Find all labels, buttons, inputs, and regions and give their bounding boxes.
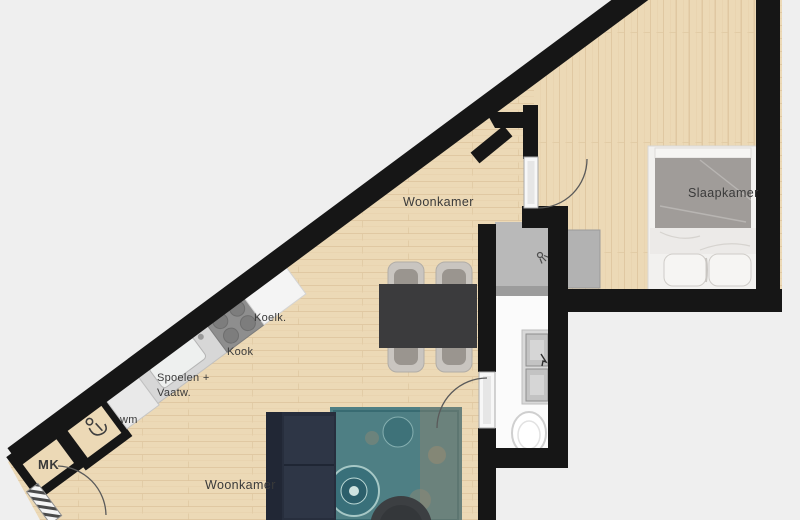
bathroom	[495, 222, 553, 454]
bathroom-right-wall	[548, 206, 568, 450]
shower-edge	[495, 286, 553, 296]
room-label-woonkamer-bottom: Woonkamer	[205, 478, 276, 492]
room-label-slaapkamer: Slaapkamer	[688, 186, 759, 200]
right-exterior-wall	[756, 0, 780, 312]
bedroom-bottom-wall	[556, 289, 782, 312]
bed	[648, 146, 758, 290]
bathroom-top-wall	[522, 206, 568, 228]
wardrobe	[566, 230, 600, 288]
label-koelkast: Koelk.	[254, 312, 286, 324]
pillow	[664, 254, 706, 286]
label-kook: Kook	[227, 346, 253, 358]
floorplan-canvas: Woonkamer Slaapkamer Woonkamer Koelk. Ko…	[0, 0, 800, 520]
label-spoelen-line2: Vaatw.	[157, 387, 191, 399]
floorplan-svg: Woonkamer Slaapkamer Woonkamer Koelk. Ko…	[0, 0, 800, 520]
dining-table	[379, 284, 477, 348]
pillow	[709, 254, 751, 286]
washer-dryer-stack	[522, 330, 552, 404]
toilet	[512, 412, 546, 454]
label-wasmachine: wm	[119, 414, 138, 426]
bathroom-bottom-wall	[495, 448, 568, 468]
wall-connector	[486, 112, 538, 128]
label-meterkast: MK	[38, 457, 59, 472]
bathroom-left-wall-upper	[478, 224, 496, 372]
label-spoelen-line1: Spoelen +	[157, 372, 210, 384]
room-label-woonkamer-top: Woonkamer	[403, 195, 474, 209]
bathroom-left-wall-lower	[478, 428, 496, 520]
couch	[266, 412, 336, 520]
